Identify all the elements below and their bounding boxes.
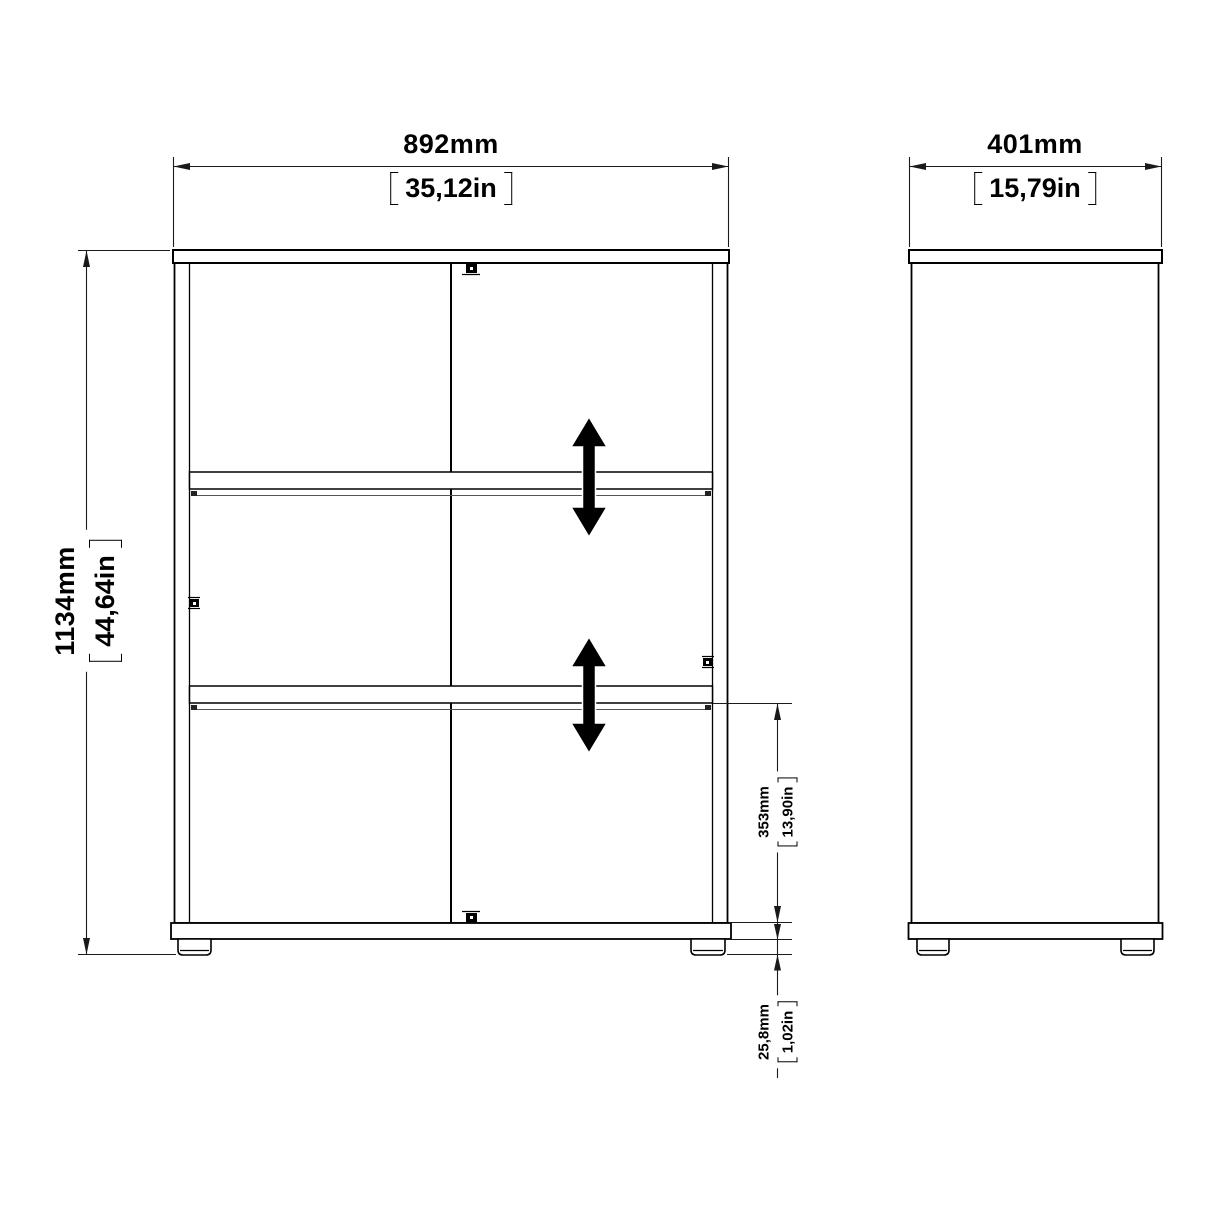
dim-label-side-depth: 401mm 15,79in [974, 131, 1096, 205]
side-body-outline [912, 263, 1159, 923]
side-depth-imperial: 15,79in [982, 173, 1088, 204]
front-width-imperial: 35,12in [398, 173, 504, 204]
foot-height-imperial-row: 1,02in [778, 1002, 798, 1063]
front-shelf-1-left-support [191, 491, 197, 496]
side-top-panel [909, 250, 1162, 263]
side-depth-metric: 401mm [987, 131, 1083, 158]
lower-section-metric: 353mm [757, 786, 773, 838]
dim-label-front-width: 892mm 35,12in [390, 131, 512, 205]
bracket-close [778, 1002, 798, 1007]
front-shelf-2-right-support [705, 705, 711, 710]
front-view [171, 250, 731, 955]
front-shelf-2-left-support [191, 705, 197, 710]
bracket-close [89, 540, 122, 548]
front-shelf-2 [190, 686, 713, 703]
bracket-close [778, 778, 798, 783]
side-depth-imperial-row: 15,79in [974, 171, 1096, 205]
side-foot-left [917, 939, 949, 955]
dim-label-foot-height: 25,8mm 1,02in [754, 996, 801, 1069]
bracket-open [974, 172, 982, 205]
front-shelf-1-right-support [705, 491, 711, 496]
front-height-imperial: 44,64in [90, 548, 121, 654]
front-height-imperial-row: 44,64in [88, 540, 122, 662]
front-foot-right [691, 939, 725, 955]
front-width-metric: 892mm [403, 131, 499, 158]
bracket-close [504, 172, 512, 205]
lower-section-imperial-row: 13,90in [778, 778, 798, 847]
side-foot-right [1121, 939, 1154, 955]
dim-label-lower-section-height: 353mm 13,90in [754, 772, 801, 853]
front-top-panel [173, 250, 729, 263]
front-foot-left [178, 939, 211, 955]
bracket-open [390, 172, 398, 205]
side-view [909, 250, 1163, 955]
side-bottom-panel [909, 923, 1163, 939]
front-bottom-panel [171, 923, 731, 939]
bracket-open [778, 841, 798, 846]
lower-section-imperial: 13,90in [779, 783, 796, 842]
dim-label-front-height: 1134mm 44,64in [48, 530, 126, 672]
technical-drawing-canvas: 892mm 35,12in 401mm 15,79in 1134mm 44,64… [0, 0, 1214, 1214]
foot-height-imperial: 1,02in [779, 1007, 796, 1058]
front-width-imperial-row: 35,12in [390, 171, 512, 205]
bracket-open [778, 1057, 798, 1062]
front-shelf-1 [190, 472, 713, 489]
bracket-open [89, 654, 122, 662]
foot-height-metric: 25,8mm [757, 1004, 773, 1060]
front-height-metric: 1134mm [52, 546, 79, 656]
bracket-close [1088, 172, 1096, 205]
